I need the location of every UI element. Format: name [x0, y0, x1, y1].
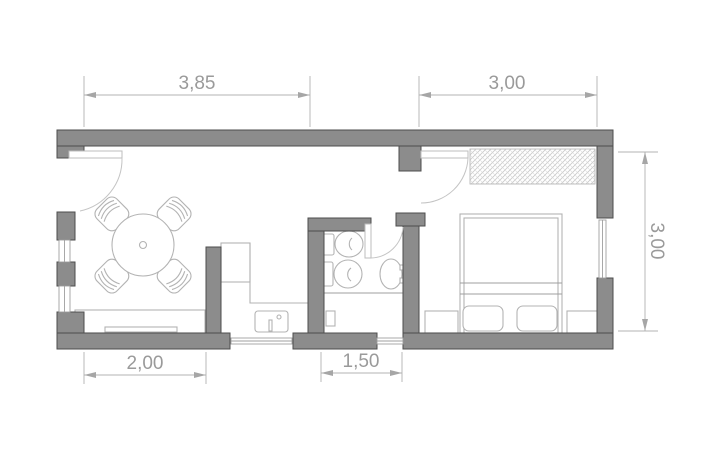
wall-bedroom-divider	[403, 226, 419, 333]
wall-bottom-right-segment	[403, 333, 613, 349]
nightstand-left-icon	[425, 311, 458, 333]
wall-right-lower	[597, 278, 613, 333]
wall-bathroom-top	[308, 218, 371, 231]
wardrobe-icon	[470, 149, 595, 184]
dimension-label-top-left: 3,85	[179, 73, 216, 94]
window-right-bedroom-icon	[599, 220, 606, 278]
kitchen-icon	[221, 243, 308, 332]
bidet-icon	[319, 260, 362, 288]
dimension-label-top-right: 3,00	[489, 73, 526, 94]
bathroom-icons	[319, 231, 404, 326]
window-bottom-kitchen-icon	[231, 338, 292, 344]
kitchen-sink-icon	[255, 311, 288, 332]
dimension-label-right-side: 3,00	[646, 223, 667, 260]
dimension-label-bottom-left: 2,00	[127, 353, 164, 374]
wall-corner-bottom-left	[57, 312, 84, 333]
dimension-label-bottom-middle: 1,50	[343, 351, 380, 372]
pillow-icon	[463, 306, 503, 331]
double-bed-icon	[460, 214, 562, 333]
sideboard-icon	[75, 310, 205, 333]
wall-bottom-middle-segment	[293, 333, 377, 349]
wall-bathroom-left	[308, 218, 324, 333]
wall-right-upper	[597, 146, 613, 218]
bedroom-door-icon	[421, 151, 468, 203]
toilet-icon	[322, 231, 363, 257]
dining-set-icon	[92, 194, 194, 296]
bathroom-door-icon	[365, 224, 403, 258]
shower-icon	[324, 293, 403, 326]
wall-top	[57, 130, 613, 146]
wall-left-pier-upper	[57, 212, 75, 240]
nightstand-right-icon	[567, 311, 598, 333]
fridge-icon	[221, 243, 250, 282]
floor-plan-drawing: 3,85 3,00 3,00 2,00 1,50	[0, 0, 703, 460]
washbasin-icon	[380, 259, 404, 289]
wall-left-pier-lower	[57, 262, 75, 286]
wall-kitchen-divider	[206, 247, 221, 333]
bedroom-icons	[425, 149, 598, 333]
window-bottom-bathroom-icon	[377, 338, 403, 344]
wall-bedroom-pier	[399, 146, 421, 171]
wall-bedroom-divider-head	[396, 213, 425, 226]
pillow-icon	[517, 306, 557, 331]
wall-bottom-left-segment	[57, 333, 230, 349]
window-left-upper-icon	[59, 240, 70, 262]
window-left-lower-icon	[59, 286, 70, 312]
kitchen-counter-icon	[250, 243, 308, 303]
floor-plan-page: 3,85 3,00 3,00 2,00 1,50	[0, 0, 703, 460]
